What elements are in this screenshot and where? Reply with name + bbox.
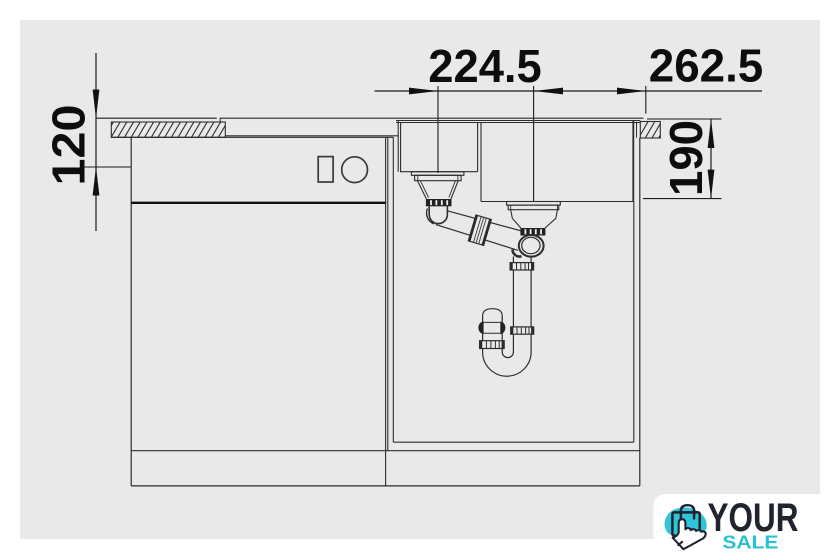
svg-text:190: 190 — [660, 120, 712, 196]
svg-text:SALE: SALE — [722, 531, 778, 552]
svg-text:120: 120 — [43, 105, 95, 186]
svg-text:224.5: 224.5 — [428, 40, 542, 92]
svg-text:262.5: 262.5 — [649, 40, 764, 92]
